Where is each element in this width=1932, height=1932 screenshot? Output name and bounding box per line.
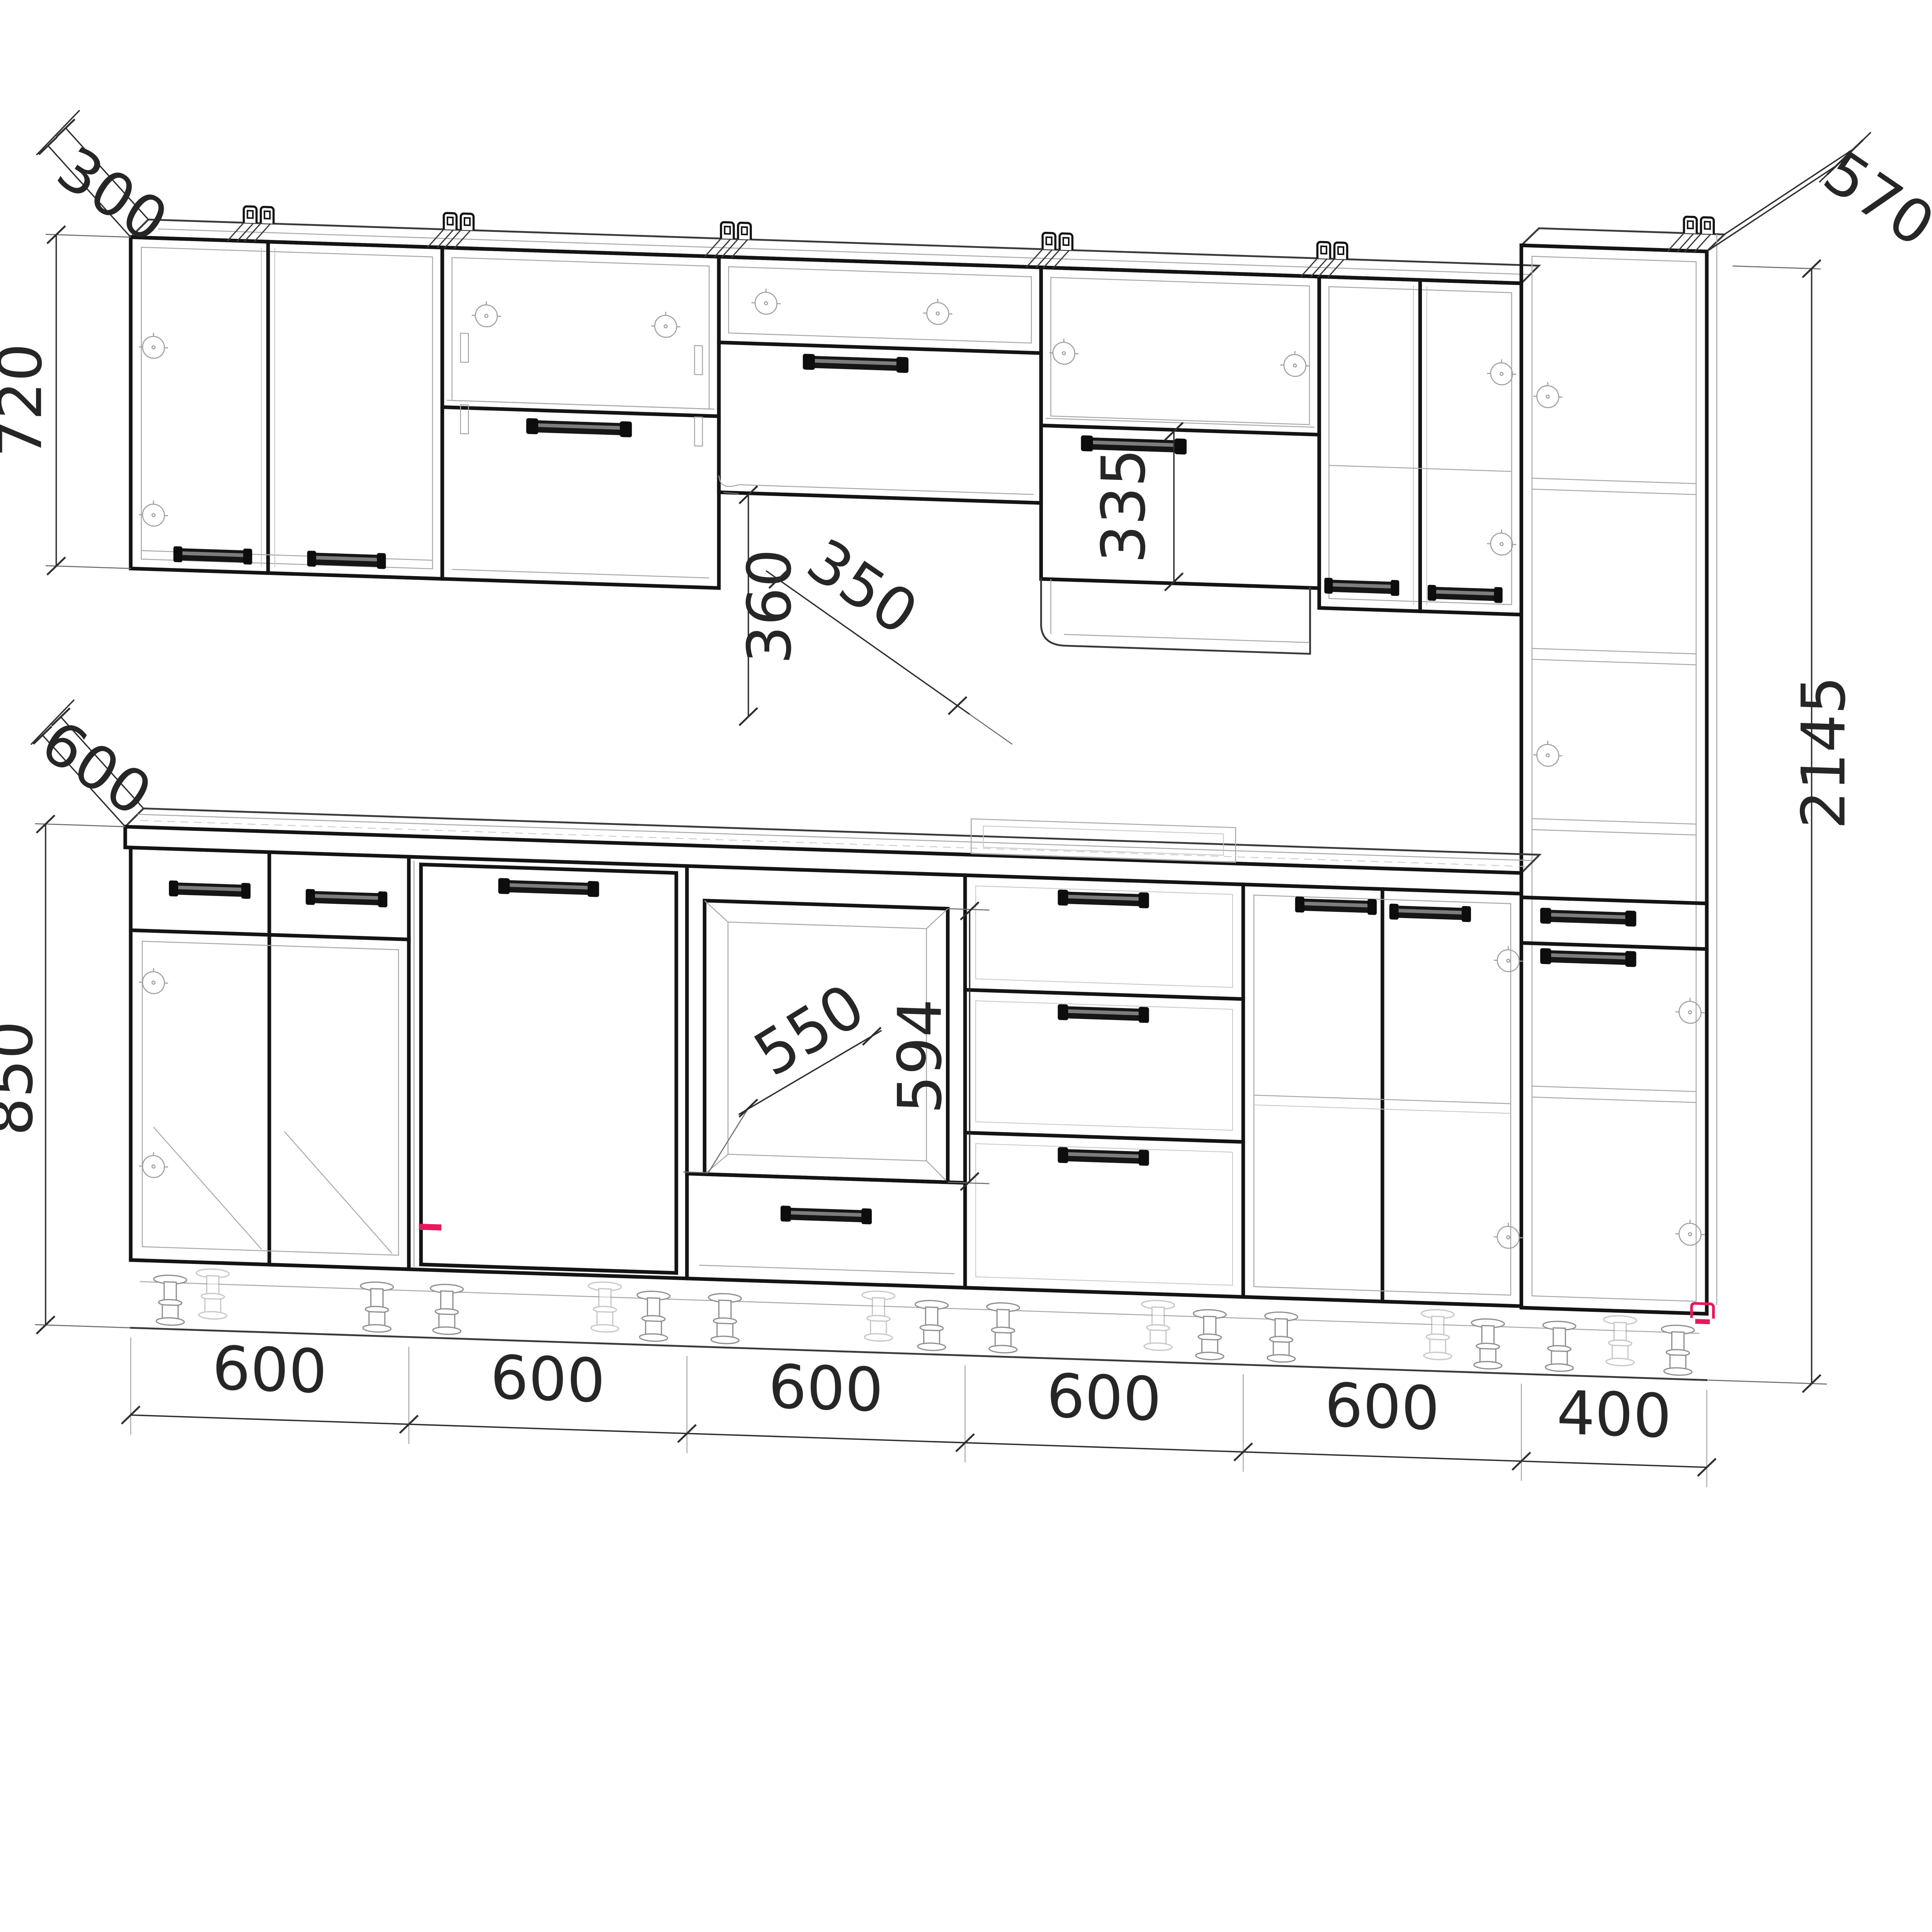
base-cabinet-dishwasher bbox=[414, 861, 676, 1277]
dishwasher-handle bbox=[498, 878, 599, 897]
hinge-icon bbox=[139, 968, 168, 994]
dim-label-wall-height: 720 bbox=[0, 342, 55, 459]
hinge-icon bbox=[1494, 946, 1523, 972]
dim-label-width-6: 400 bbox=[1557, 1378, 1672, 1452]
hinge-icon bbox=[472, 301, 501, 327]
dim-wall-height: 720 bbox=[0, 223, 131, 578]
door-handle bbox=[1324, 578, 1399, 596]
dim-wall-depth: 300 bbox=[36, 109, 180, 258]
tall-door-handle bbox=[1540, 948, 1636, 967]
kitchen-elevation-drawing: 300 720 600 bbox=[0, 0, 1932, 1581]
dim-label-base-height: 850 bbox=[0, 1020, 46, 1137]
plinth-and-feet bbox=[131, 1266, 1707, 1380]
door-handle bbox=[1389, 903, 1471, 922]
countertop bbox=[125, 808, 1539, 895]
hinge-icon bbox=[139, 1151, 168, 1178]
hinge-icon bbox=[1675, 1219, 1705, 1246]
base-cabinet-drawers bbox=[965, 819, 1243, 1286]
base-cabinet-double-door bbox=[1254, 885, 1523, 1306]
hinge-icon bbox=[1280, 350, 1310, 377]
dim-niche-depth: 550 bbox=[683, 965, 881, 1179]
dim-label-tall-depth: 570 bbox=[1812, 137, 1932, 260]
hinge-icon bbox=[1533, 382, 1563, 408]
hinge-icon bbox=[1049, 338, 1079, 365]
dim-label-niche-depth: 550 bbox=[742, 970, 876, 1090]
hinge-icon bbox=[1494, 1222, 1523, 1249]
hinge-icon bbox=[139, 332, 168, 359]
dim-worktop-depth: 600 bbox=[29, 698, 163, 831]
drawer-handle bbox=[1058, 889, 1149, 908]
flip-door-handle bbox=[803, 354, 908, 373]
tall-cabinet bbox=[1521, 211, 1724, 1325]
hinge-icon bbox=[1675, 997, 1705, 1024]
hinge-icon bbox=[139, 500, 168, 527]
hinge-icon bbox=[1533, 740, 1563, 767]
base-cabinet-sink bbox=[131, 847, 409, 1269]
drawer-handle bbox=[1058, 1004, 1149, 1023]
wall-cabinet-flip-door-2 bbox=[719, 257, 1041, 503]
dim-label-tall-height: 2145 bbox=[1788, 675, 1859, 830]
tall-drawer-handle bbox=[1540, 908, 1636, 927]
wall-mounting-brackets bbox=[227, 206, 1347, 278]
dim-label-width-4: 600 bbox=[1046, 1361, 1161, 1435]
tall-cabinet-shelves bbox=[1532, 478, 1696, 1103]
dim-label-niche-height: 594 bbox=[885, 997, 955, 1114]
hinge-icon bbox=[651, 311, 680, 338]
hinge-icon bbox=[752, 288, 781, 315]
accent-mark bbox=[419, 1224, 441, 1231]
dim-label-width-1: 600 bbox=[212, 1333, 327, 1407]
door-handle bbox=[1428, 585, 1503, 603]
dim-label-hood-gap: 360 bbox=[734, 548, 804, 665]
dim-label-flip-door: 335 bbox=[1088, 447, 1159, 564]
dim-niche-height: 594 bbox=[885, 899, 990, 1191]
dim-base-height: 850 bbox=[0, 813, 131, 1337]
flip-door-handle bbox=[526, 418, 632, 437]
dim-label-width-2: 600 bbox=[490, 1342, 605, 1416]
drawer-handle bbox=[169, 881, 250, 899]
wall-cabinet-double-door-right bbox=[1319, 277, 1521, 615]
wall-cabinet-double-door-left bbox=[131, 237, 442, 579]
hinge-icon bbox=[923, 298, 952, 325]
dim-tall-height: 2145 bbox=[1708, 256, 1859, 1395]
wall-mounting-bracket bbox=[1668, 216, 1697, 252]
drawer-handle bbox=[1058, 1147, 1149, 1166]
dim-label-width-5: 600 bbox=[1325, 1370, 1439, 1444]
dim-tall-depth: 570 bbox=[1707, 127, 1932, 262]
drawing-page: 300 720 600 bbox=[0, 0, 1932, 1581]
dim-label-width-3: 600 bbox=[769, 1351, 883, 1425]
drawer-handle bbox=[781, 1206, 872, 1225]
wall-cabinet-flip-door-1 bbox=[442, 248, 719, 588]
dim-hood-gap: 360 bbox=[723, 485, 804, 728]
drawer-handle bbox=[306, 889, 387, 907]
dim-label-upper-depth: 350 bbox=[795, 525, 930, 648]
wall-cabinet-flip-door-3 bbox=[1041, 267, 1319, 654]
